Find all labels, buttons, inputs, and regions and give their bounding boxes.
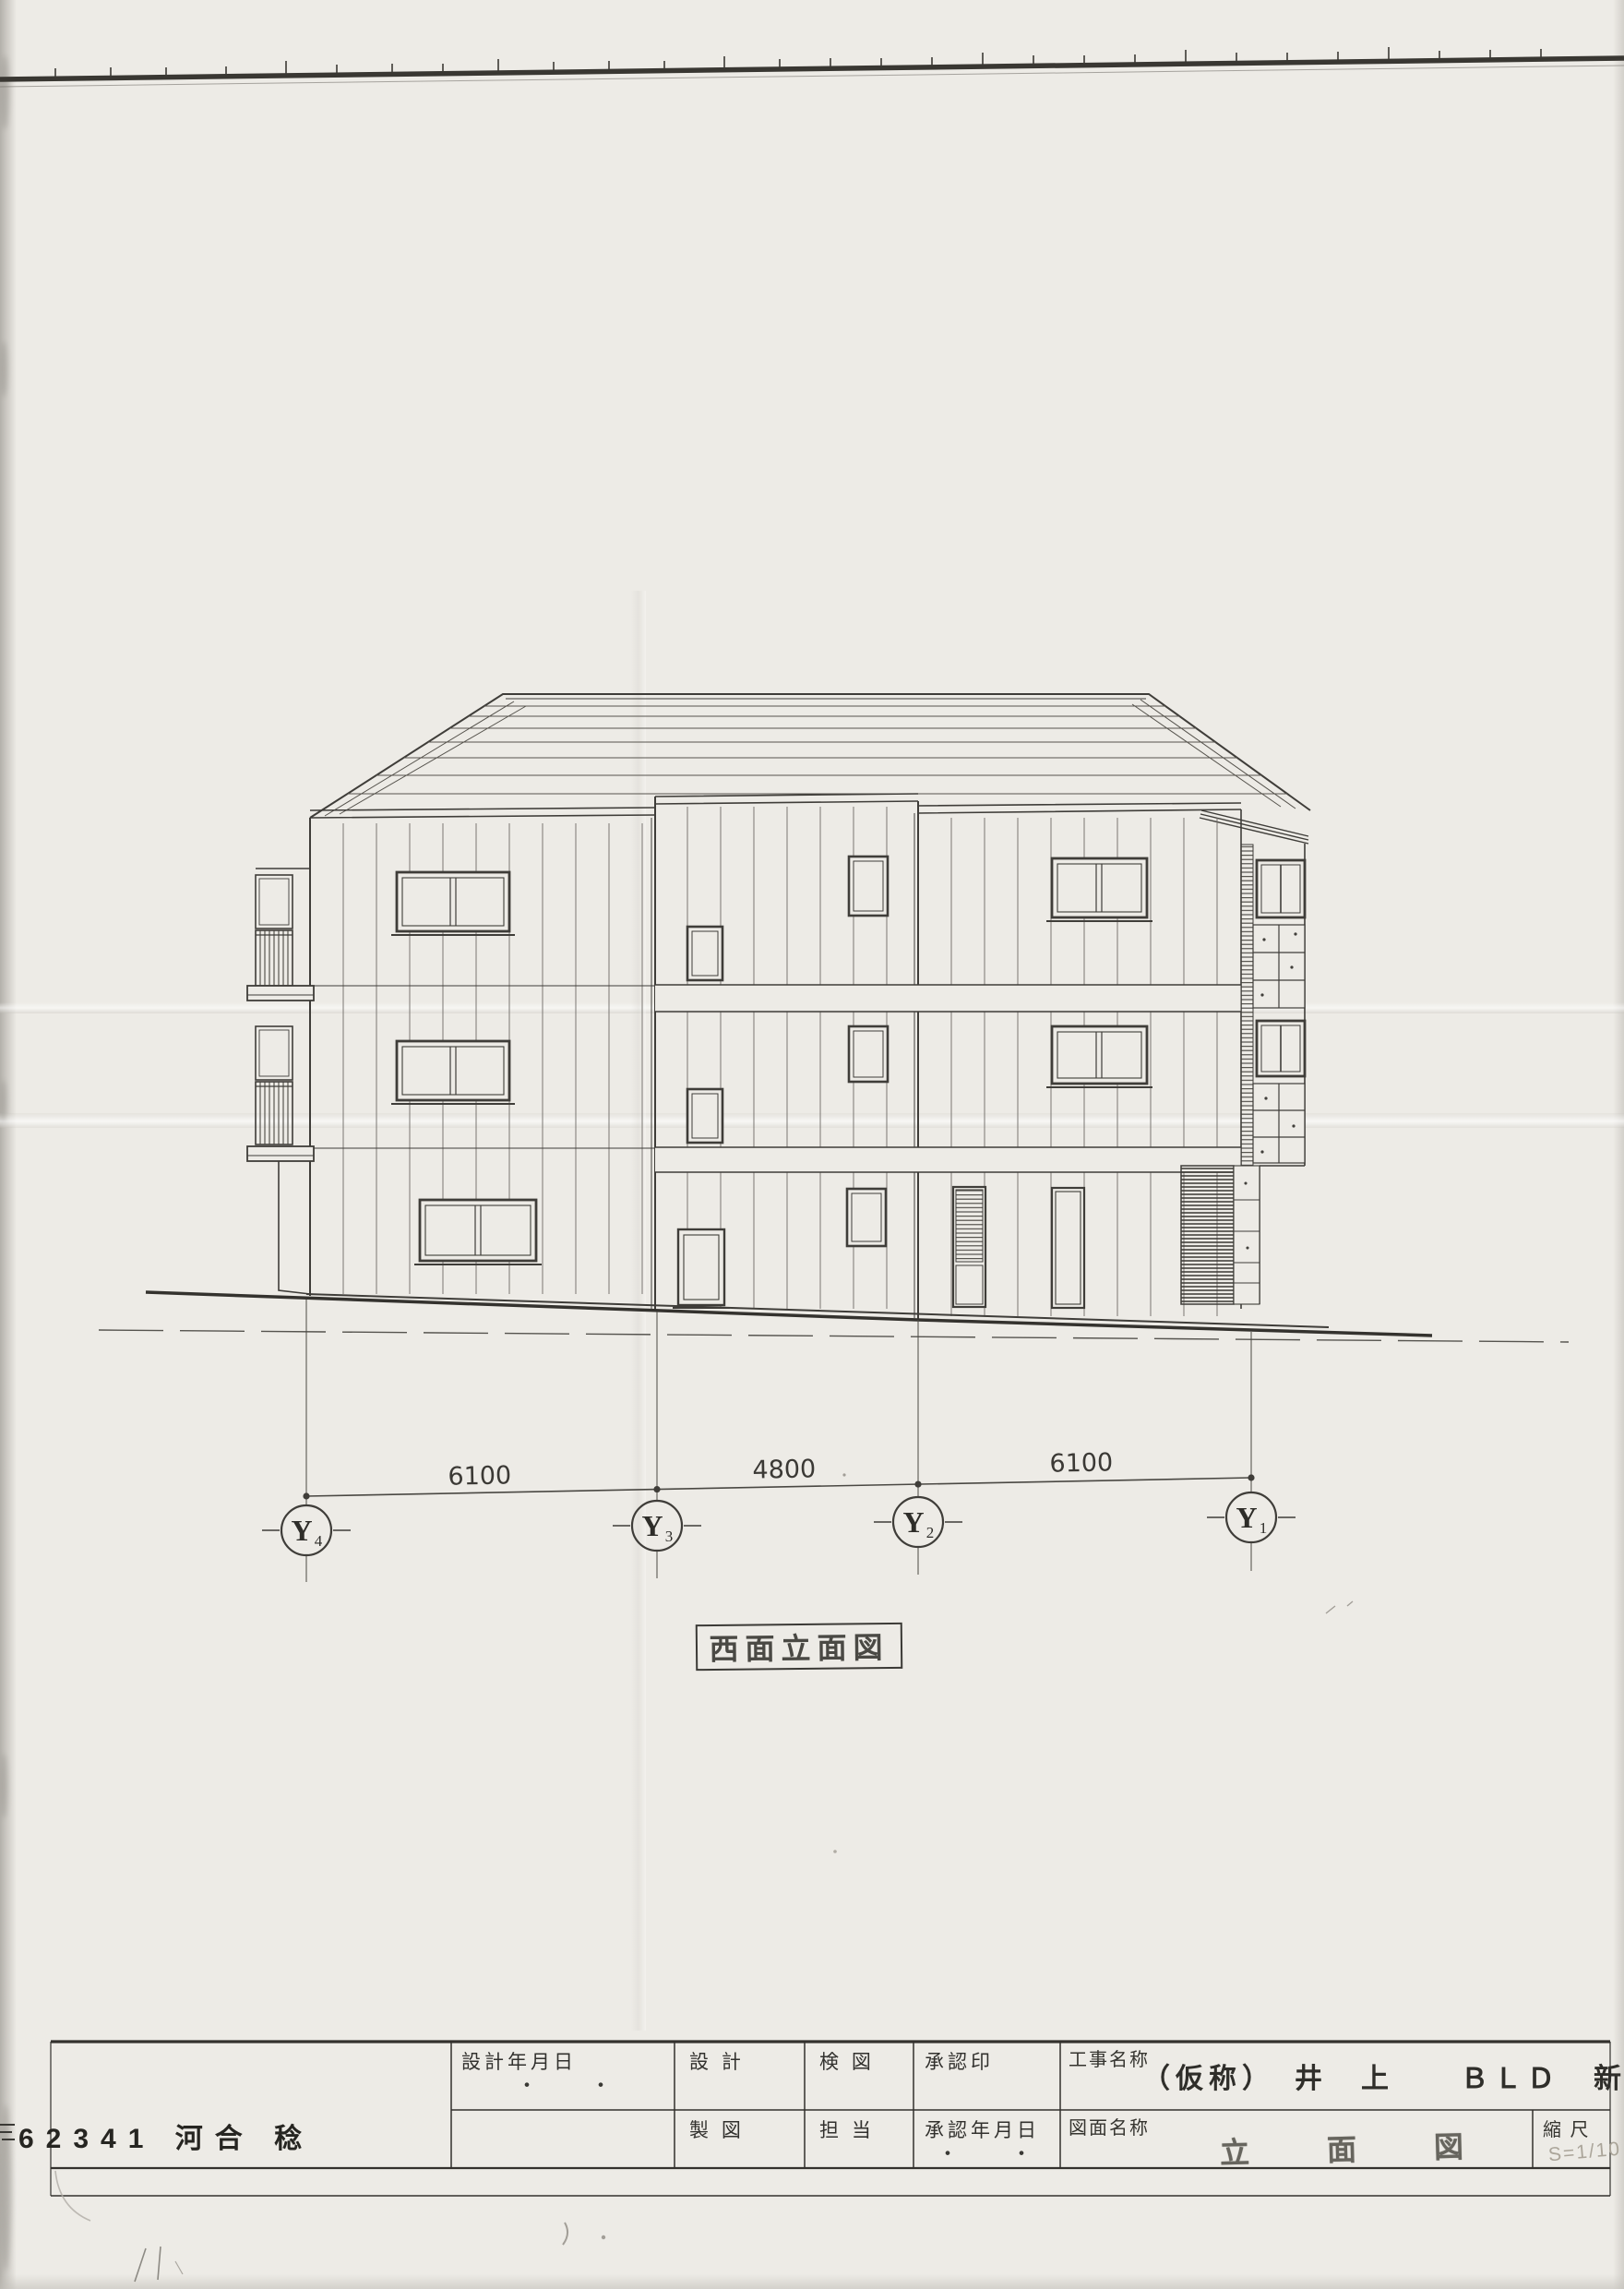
window-2pane xyxy=(391,1041,515,1104)
drawing-name-label: 図面名称 xyxy=(1069,2113,1150,2139)
window-2pane xyxy=(1046,1026,1152,1087)
pencil-marks xyxy=(55,1473,1353,2282)
window-2pane xyxy=(414,1200,542,1264)
grid-bubble-y3: Y 3 xyxy=(613,1501,701,1551)
grid-bubble-y4: Y 4 xyxy=(262,1505,351,1555)
tile-panel xyxy=(1253,925,1305,1008)
design-date-dots: ・ ・ xyxy=(517,2069,627,2099)
dimension-labels: 6100 4800 6100 xyxy=(448,1448,1113,1491)
window-2pane xyxy=(1046,858,1152,921)
charge-label: 担 当 xyxy=(819,2115,875,2143)
grid-label: Y xyxy=(641,1509,663,1542)
draft-label: 製 図 xyxy=(689,2115,745,2143)
balcony-upper xyxy=(247,869,314,1001)
dimension-value: 6100 xyxy=(1049,1448,1113,1478)
window-small xyxy=(847,1189,886,1246)
tile-column xyxy=(1234,1166,1260,1304)
window-small xyxy=(849,857,888,916)
top-ruler xyxy=(0,47,1624,87)
grid-sub: 1 xyxy=(1260,1519,1268,1537)
drawing-name-value: 立 面 図 xyxy=(1219,2123,1487,2173)
scale-label: 縮 尺 xyxy=(1543,2115,1591,2141)
building-elevation xyxy=(99,694,1569,1342)
elevation-title: 西面立面図 xyxy=(709,1624,889,1669)
window-2pane xyxy=(1257,1021,1305,1076)
grid-sub: 3 xyxy=(665,1528,674,1545)
window-small xyxy=(687,1089,722,1143)
grid-bubble-y1: Y 1 xyxy=(1207,1492,1296,1542)
check-label: 検 図 xyxy=(819,2047,875,2075)
grid-label: Y xyxy=(1236,1501,1257,1534)
cutoff-character xyxy=(0,2125,15,2139)
window-small xyxy=(687,927,722,980)
eave-fascia xyxy=(310,794,1308,844)
grid-sub: 2 xyxy=(926,1524,935,1541)
brick-panel-dark xyxy=(1181,1166,1234,1304)
right-wing xyxy=(1181,845,1305,1304)
grid-label: Y xyxy=(902,1505,924,1539)
grid-label: Y xyxy=(291,1514,312,1547)
scanned-drawing-sheet: 6100 4800 6100 Y 4 Y 3 xyxy=(0,0,1624,2289)
plain-door xyxy=(1052,1188,1084,1308)
dimension-value: 4800 xyxy=(752,1455,816,1484)
grid-bubbles: Y 4 Y 3 Y 2 Y 1 xyxy=(262,1492,1296,1555)
grid-sub: 4 xyxy=(315,1532,323,1550)
design-label: 設 計 xyxy=(689,2047,745,2075)
project-name-value: （仮称） 井 上 ＢＬＤ 新築工事 xyxy=(1142,2055,1624,2096)
entry-door xyxy=(673,1229,730,1308)
ground-lines xyxy=(99,1292,1569,1342)
louver-door xyxy=(953,1187,985,1307)
approval-seal-label: 承認印 xyxy=(925,2047,994,2075)
roof xyxy=(277,694,1347,818)
window-small xyxy=(849,1026,888,1082)
corner-registration-text: 62341 河合 稔 xyxy=(18,2115,314,2156)
window-2pane xyxy=(391,872,515,935)
window-2pane xyxy=(1257,860,1305,917)
balcony-lower xyxy=(247,1026,314,1294)
dimension-string: 6100 4800 6100 xyxy=(303,1300,1254,1582)
brick-pilaster xyxy=(1241,845,1253,1166)
drawing-linework: 6100 4800 6100 Y 4 Y 3 xyxy=(0,0,1624,2289)
dimension-value: 6100 xyxy=(448,1461,511,1491)
tile-panel xyxy=(1253,1084,1305,1163)
approval-date-dots: ・ ・ xyxy=(937,2138,1048,2167)
grid-bubble-y2: Y 2 xyxy=(874,1497,962,1547)
elevation-title-box: 西面立面図 xyxy=(696,1623,903,1671)
project-name-label: 工事名称 xyxy=(1069,2044,1150,2071)
